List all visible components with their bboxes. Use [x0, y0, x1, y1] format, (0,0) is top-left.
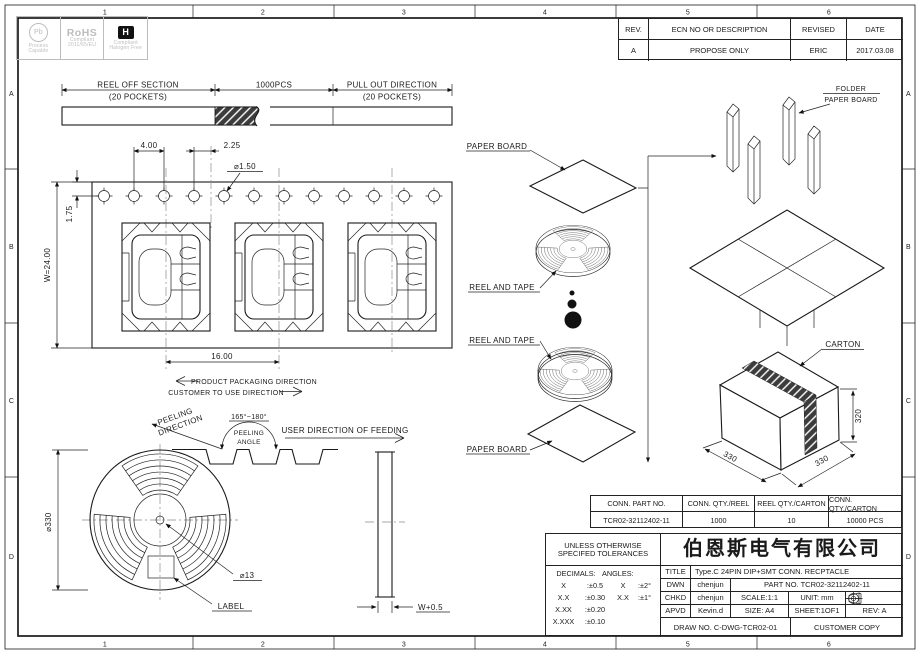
- rev-header-revised: REVISED: [791, 19, 847, 40]
- zone-row-right-b: B: [906, 244, 911, 251]
- draw-no: DRAW NO. C-DWG-TCR02-01: [661, 618, 791, 637]
- zone-col-top-5: 5: [686, 10, 690, 17]
- scale-value: SCALE:1:1: [731, 592, 789, 605]
- zone-col-bottom-6: 6: [827, 642, 831, 649]
- tolerance-note: UNLESS OTHERWISESPECIFED TOLERANCES: [546, 534, 661, 566]
- dim-carton-depth: 330: [722, 449, 739, 464]
- rohs-logo: RoHS Compliant 2011/65/EU: [61, 17, 105, 59]
- rev-header-date: DATE: [847, 19, 903, 40]
- title-block: UNLESS OTHERWISESPECIFED TOLERANCES DECI…: [545, 533, 902, 636]
- dim-carton-height: 320: [854, 409, 863, 423]
- tape-side-view: W+0.5: [357, 452, 450, 613]
- zone-col-bottom-1: 1: [103, 642, 107, 649]
- qty-header-conn-carton: CONN. QTY./CARTON: [829, 496, 901, 512]
- projection-symbol-cone-icon: [846, 592, 863, 605]
- dim-hole-offset: 2.25: [224, 141, 241, 150]
- folder-paper-board-label-1: FOLDER: [836, 86, 866, 93]
- part-no: PART NO. TCR02-32112402-11: [731, 579, 903, 592]
- zone-row-left-c: C: [9, 398, 14, 405]
- leader-tape-hatch: [215, 107, 258, 125]
- reel-label-callout: LABEL: [218, 602, 245, 611]
- qty-header-part: CONN. PART NO.: [591, 496, 683, 512]
- revision-table: REV. ECN NO OR DESCRIPTION REVISED DATE …: [618, 18, 902, 60]
- user-feeding-direction-label: USER DIRECTION OF FEEDING: [281, 426, 408, 435]
- pb-free-icon: Pb: [29, 23, 48, 42]
- zone-col-top-3: 3: [402, 10, 406, 17]
- zone-row-left-a: A: [9, 91, 14, 98]
- dim-hole-pitch: 4.00: [141, 141, 158, 150]
- pb-free-logo: Pb ProcessCapable: [17, 17, 61, 59]
- dim-carton-width: 330: [813, 453, 830, 468]
- qty-cell-conn-carton: 10000 PCS: [829, 512, 901, 528]
- pull-out-direction-label: PULL OUT DIRECTION: [347, 81, 437, 90]
- dim-hole-edge: 1.75: [65, 205, 74, 222]
- tolerance-values: DECIMALS:ANGLES: X:±0.5X:±2° X.X:±0.30X.…: [546, 566, 661, 637]
- peeling-angle-word1: PEELING: [234, 430, 264, 437]
- compliance-logos: Pb ProcessCapable RoHS Compliant 2011/65…: [16, 16, 148, 60]
- zone-row-left-d: D: [9, 554, 14, 561]
- peeling-angle-range: 165°~180°: [231, 413, 267, 421]
- reel-front-view: LABEL ⌀13 ⌀330: [44, 444, 262, 611]
- unit-value: UNIT: mm: [789, 592, 846, 605]
- rev-cell-ecn: PROPOSE ONLY: [649, 40, 791, 61]
- qty-cell-reel-carton: 10: [755, 512, 829, 528]
- packing-sequence: PAPER BOARD REEL AND TAPE REEL AND TAPE …: [466, 142, 716, 462]
- paper-board-top-label: PAPER BOARD: [467, 142, 528, 151]
- zone-row-right-a: A: [906, 91, 911, 98]
- paper-board-bottom: [528, 405, 635, 462]
- reel-and-tape-label-1: REEL AND TAPE: [469, 283, 535, 292]
- projection-symbols: [846, 592, 903, 605]
- product-packaging-direction-label: PRODUCT PACKAGING DIRECTION: [191, 379, 317, 386]
- dim-side-width: W+0.5: [418, 603, 443, 612]
- dim-hole-diameter: ⌀1.50: [234, 162, 256, 171]
- dim-reel-diameter: ⌀330: [44, 512, 53, 532]
- zone-col-top-2: 2: [261, 10, 265, 17]
- reel-off-section-label: REEL OFF SECTION: [97, 81, 178, 90]
- peeling-angle-word2: ANGLE: [237, 439, 261, 446]
- qty-cell-per-reel: 1000: [683, 512, 755, 528]
- closed-carton: CARTON 320 330 330: [703, 340, 864, 487]
- halogen-free-logo: H CompliantHalogen Free: [104, 17, 147, 59]
- zone-col-bottom-2: 2: [261, 642, 265, 649]
- zone-col-bottom-5: 5: [686, 642, 690, 649]
- customer-use-direction-label: CUSTOMER TO USE DIRECTION: [168, 390, 284, 397]
- zone-row-right-d: D: [906, 554, 911, 561]
- zone-col-top-6: 6: [827, 10, 831, 17]
- halogen-free-icon: H: [118, 26, 134, 39]
- chkd-label: CHKD: [661, 592, 691, 605]
- tape-top-view: 4.00 2.25 ⌀1.50 1.75 W=24.00 16.00 PRODU…: [43, 141, 452, 397]
- zone-row-right-c: C: [906, 398, 911, 405]
- title-label: TITLE: [661, 566, 691, 579]
- rev-cell-rev: A: [619, 40, 649, 61]
- carton-tape-band-side: [804, 395, 817, 455]
- reel-off-pockets-label: (20 POCKETS): [109, 93, 167, 102]
- dim-hub-diameter: ⌀13: [240, 571, 255, 580]
- dwn-label: DWN: [661, 579, 691, 592]
- dwn-value: chenjun: [691, 579, 731, 592]
- zone-col-bottom-3: 3: [402, 642, 406, 649]
- size-value: SIZE: A4: [731, 605, 789, 618]
- paper-board-bottom-label: PAPER BOARD: [467, 445, 528, 454]
- chkd-value: chenjun: [691, 592, 731, 605]
- rev-header-ecn: ECN NO OR DESCRIPTION: [649, 19, 791, 40]
- folder-and-open-carton: FOLDER PAPER BOARD: [690, 86, 884, 346]
- strip-qty-label: 1000PCS: [256, 81, 292, 90]
- reel-label-area: [148, 556, 174, 578]
- customer-copy: CUSTOMER COPY: [791, 618, 903, 637]
- pull-out-pockets-label: (20 POCKETS): [363, 93, 421, 102]
- company-name: 伯恩斯电气有限公司: [661, 534, 903, 566]
- sheet-value: SHEET:1OF1: [789, 605, 846, 618]
- folder-paper-board-label-2: PAPER BOARD: [824, 97, 877, 104]
- zone-col-bottom-4: 4: [543, 642, 547, 649]
- qty-header-per-reel: CONN. QTY./REEL: [683, 496, 755, 512]
- zone-row-left-b: B: [9, 244, 14, 251]
- quantity-table: CONN. PART NO. CONN. QTY./REEL REEL QTY.…: [590, 495, 902, 528]
- carton-label: CARTON: [825, 340, 860, 349]
- reel-off-diagram: REEL OFF SECTION (20 POCKETS) 1000PCS PU…: [62, 81, 452, 127]
- title-value: Type.C 24PIN DIP+SMT CONN. RECPTACLE: [691, 566, 903, 579]
- apvd-value: Kevin.d: [691, 605, 731, 618]
- dim-pocket-pitch: 16.00: [211, 352, 233, 361]
- rev-cell-date: 2017.03.08: [847, 40, 903, 61]
- zone-col-top-4: 4: [543, 10, 547, 17]
- qty-header-reel-carton: REEL QTY./CARTON: [755, 496, 829, 512]
- drawing-sheet: 1 2 3 4 5 6 1 2 3 4 5 6 A B C D A B C D …: [0, 0, 920, 654]
- rev-cell-revised: ERIC: [791, 40, 847, 61]
- reel-and-tape-label-2: REEL AND TAPE: [469, 336, 535, 345]
- peeling-diagram: 165°~180° PEELING ANGLE PEELING DIRECTIO…: [152, 404, 409, 464]
- paper-board-top: [530, 160, 636, 213]
- qty-cell-part: TCR02-32112402-11: [591, 512, 683, 528]
- apvd-label: APVD: [661, 605, 691, 618]
- dim-tape-width: W=24.00: [43, 248, 52, 283]
- rev-value: REV: A: [846, 605, 903, 618]
- rev-header-rev: REV.: [619, 19, 649, 40]
